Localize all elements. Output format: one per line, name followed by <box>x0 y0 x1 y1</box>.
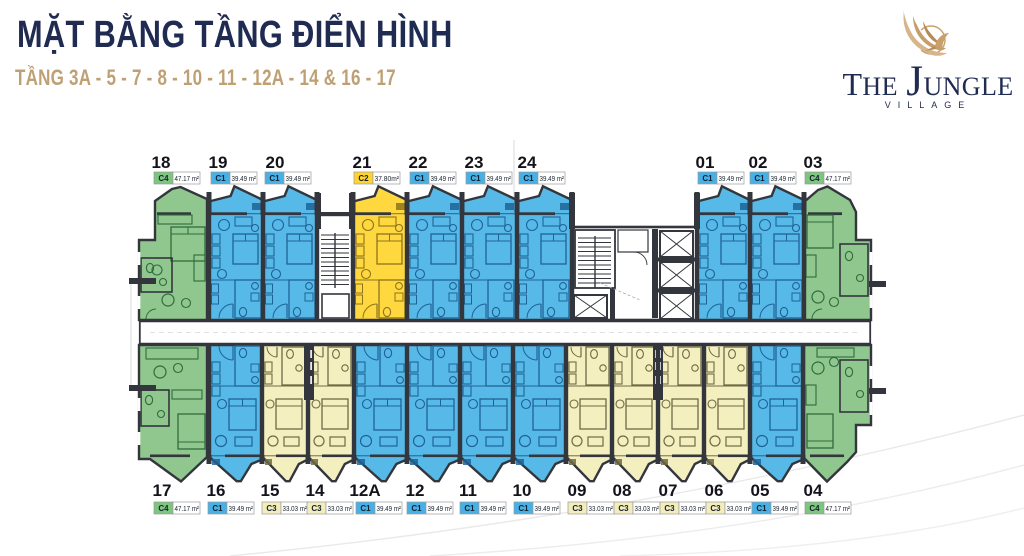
svg-text:39.49 m²: 39.49 m² <box>481 504 506 513</box>
svg-text:03: 03 <box>804 153 823 172</box>
svg-text:09: 09 <box>568 481 587 500</box>
svg-text:C4: C4 <box>809 174 820 183</box>
svg-text:33.03 m²: 33.03 m² <box>328 504 353 513</box>
svg-text:02: 02 <box>749 153 768 172</box>
svg-text:C3: C3 <box>710 504 721 513</box>
svg-text:05: 05 <box>751 481 770 500</box>
svg-text:C1: C1 <box>464 504 475 513</box>
svg-text:39.49 m²: 39.49 m² <box>428 504 453 513</box>
svg-text:C1: C1 <box>215 174 226 183</box>
svg-text:39.49 m²: 39.49 m² <box>540 174 565 183</box>
svg-text:37.80m²: 37.80m² <box>375 174 400 183</box>
svg-text:C2: C2 <box>358 174 369 183</box>
svg-text:12: 12 <box>406 481 425 500</box>
svg-text:33.03 m²: 33.03 m² <box>283 504 308 513</box>
svg-text:24: 24 <box>518 153 537 172</box>
svg-text:47.17 m²: 47.17 m² <box>175 504 200 513</box>
svg-text:C3: C3 <box>311 504 322 513</box>
svg-text:39.49 m²: 39.49 m² <box>487 174 512 183</box>
svg-text:39.49 m²: 39.49 m² <box>773 504 798 513</box>
svg-text:39.49 m²: 39.49 m² <box>229 504 254 513</box>
svg-text:33.03 m²: 33.03 m² <box>589 504 614 513</box>
svg-text:C1: C1 <box>414 174 425 183</box>
svg-text:C3: C3 <box>664 504 675 513</box>
svg-text:C1: C1 <box>702 174 713 183</box>
svg-text:15: 15 <box>261 481 280 500</box>
svg-text:33.03 m²: 33.03 m² <box>681 504 706 513</box>
svg-text:17: 17 <box>153 481 172 500</box>
svg-text:39.49 m²: 39.49 m² <box>232 174 257 183</box>
svg-text:39.49 m²: 39.49 m² <box>377 504 402 513</box>
svg-text:C1: C1 <box>756 504 767 513</box>
svg-text:C1: C1 <box>523 174 534 183</box>
svg-text:47.17 m²: 47.17 m² <box>826 504 851 513</box>
svg-text:06: 06 <box>705 481 724 500</box>
svg-text:08: 08 <box>613 481 632 500</box>
svg-text:39.49 m²: 39.49 m² <box>719 174 744 183</box>
svg-text:39.49 m²: 39.49 m² <box>431 174 456 183</box>
svg-text:C1: C1 <box>360 504 371 513</box>
svg-text:47.17 m²: 47.17 m² <box>175 174 200 183</box>
svg-text:20: 20 <box>266 153 285 172</box>
svg-text:C4: C4 <box>158 504 169 513</box>
svg-text:04: 04 <box>804 481 823 500</box>
svg-text:39.49 m²: 39.49 m² <box>771 174 796 183</box>
svg-text:C1: C1 <box>411 504 422 513</box>
svg-text:47.17 m²: 47.17 m² <box>826 174 851 183</box>
svg-text:C4: C4 <box>158 174 169 183</box>
svg-text:39.49 m²: 39.49 m² <box>535 504 560 513</box>
svg-text:19: 19 <box>209 153 228 172</box>
svg-text:21: 21 <box>353 153 372 172</box>
svg-text:33.03 m²: 33.03 m² <box>635 504 660 513</box>
svg-text:C3: C3 <box>572 504 583 513</box>
svg-text:16: 16 <box>207 481 226 500</box>
svg-text:23: 23 <box>465 153 484 172</box>
svg-text:C3: C3 <box>618 504 629 513</box>
svg-text:22: 22 <box>409 153 428 172</box>
svg-text:07: 07 <box>659 481 678 500</box>
svg-text:C1: C1 <box>754 174 765 183</box>
svg-text:39.49 m²: 39.49 m² <box>286 174 311 183</box>
svg-text:10: 10 <box>513 481 532 500</box>
svg-text:11: 11 <box>459 481 477 500</box>
svg-text:C1: C1 <box>212 504 223 513</box>
svg-text:C3: C3 <box>266 504 277 513</box>
svg-text:C4: C4 <box>809 504 820 513</box>
svg-text:18: 18 <box>152 153 171 172</box>
svg-text:C1: C1 <box>269 174 280 183</box>
svg-text:12A: 12A <box>349 481 380 500</box>
svg-text:14: 14 <box>306 481 325 500</box>
svg-text:33.03 m²: 33.03 m² <box>727 504 752 513</box>
svg-text:C1: C1 <box>518 504 529 513</box>
svg-text:C1: C1 <box>470 174 481 183</box>
svg-text:01: 01 <box>696 153 715 172</box>
